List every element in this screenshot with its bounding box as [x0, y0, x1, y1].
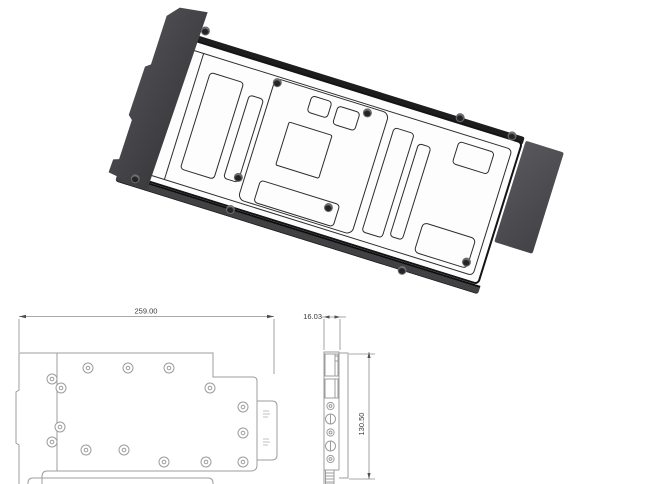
- side-screw-holes: [326, 402, 336, 462]
- arrowhead-right: [267, 315, 274, 318]
- backplate-outline: [16, 353, 257, 484]
- etch-mark: [263, 439, 270, 445]
- top-view-drawing: 259.00: [0, 300, 300, 484]
- side-view-drawing: 16.03: [290, 300, 400, 484]
- bracket-tab-hatched: [326, 470, 335, 484]
- arrowhead-up: [367, 352, 370, 358]
- etch-mark: [263, 411, 270, 417]
- arrowhead-left: [19, 315, 26, 318]
- io-tab-outline: [257, 401, 277, 460]
- lower-section-outline: [28, 478, 213, 484]
- thickness-dimension-label: 16.03: [303, 312, 322, 321]
- height-dimension-label: 130.50: [357, 413, 366, 436]
- screw-holes: [47, 363, 248, 467]
- drawing-canvas: 259.00: [0, 0, 645, 484]
- arrowhead-left: [324, 315, 330, 318]
- width-dimension-label: 259.00: [135, 307, 158, 316]
- arrowhead-down: [367, 473, 370, 479]
- arrowhead-right: [335, 315, 341, 318]
